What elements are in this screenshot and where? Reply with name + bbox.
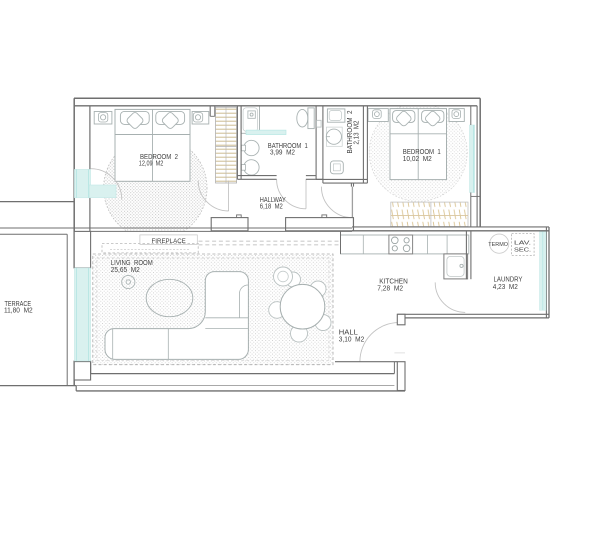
svg-text:11,80 M2: 11,80 M2 bbox=[4, 307, 33, 314]
svg-text:LAV.: LAV. bbox=[514, 240, 532, 246]
svg-text:2,13 M2: 2,13 M2 bbox=[353, 120, 360, 144]
svg-text:SEC.: SEC. bbox=[514, 247, 531, 253]
svg-text:6,18 M2: 6,18 M2 bbox=[260, 204, 283, 211]
svg-text:3,99 M2: 3,99 M2 bbox=[270, 150, 295, 157]
svg-text:12,09 M2: 12,09 M2 bbox=[139, 160, 164, 167]
svg-text:TERMO: TERMO bbox=[488, 242, 508, 248]
svg-text:LIVING ROOM: LIVING ROOM bbox=[111, 260, 153, 267]
svg-text:HALL: HALL bbox=[339, 329, 358, 336]
svg-text:4,23 M2: 4,23 M2 bbox=[493, 284, 518, 291]
svg-text:3,10 M2: 3,10 M2 bbox=[339, 336, 365, 343]
svg-text:LAUNDRY: LAUNDRY bbox=[494, 276, 523, 283]
svg-text:10,02 M2: 10,02 M2 bbox=[403, 156, 432, 163]
svg-text:25,65 M2: 25,65 M2 bbox=[111, 267, 140, 274]
svg-text:FIREPLACE: FIREPLACE bbox=[152, 238, 187, 245]
svg-text:KITCHEN: KITCHEN bbox=[379, 278, 408, 285]
svg-text:BEDROOM 1: BEDROOM 1 bbox=[403, 149, 441, 156]
svg-text:7,28 M2: 7,28 M2 bbox=[377, 286, 403, 293]
